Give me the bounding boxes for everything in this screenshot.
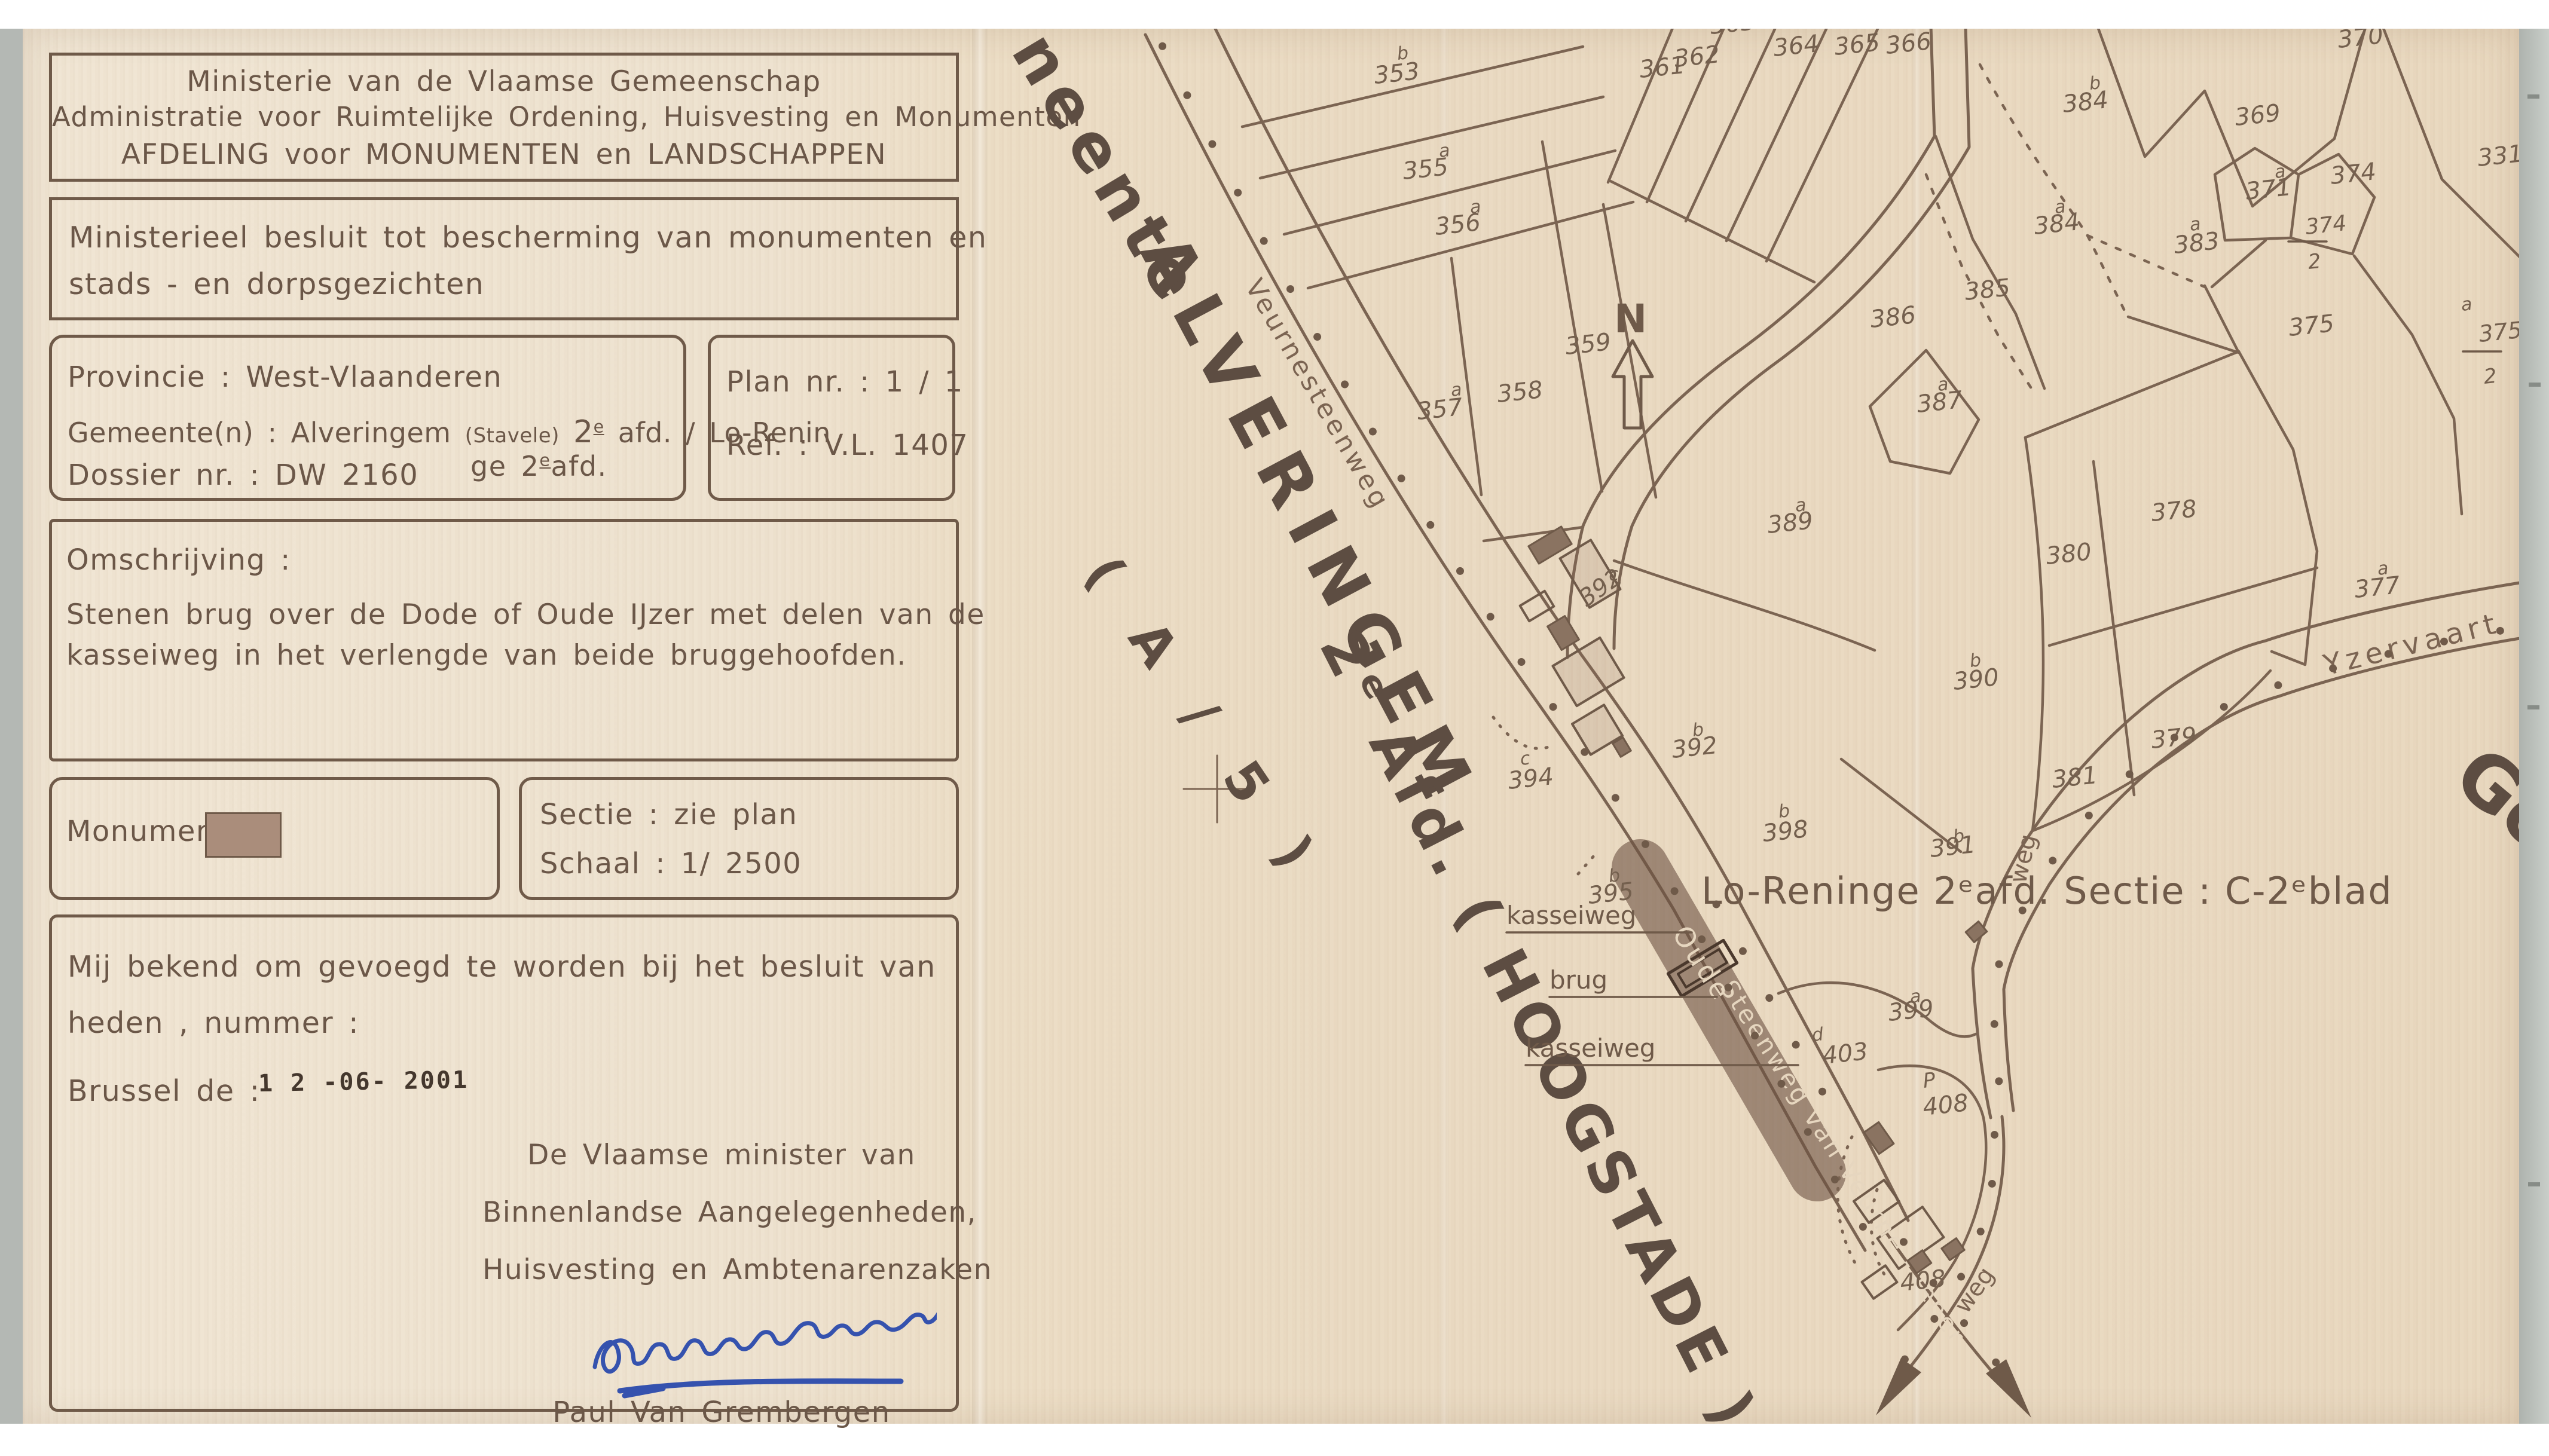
- boundary-dot: [1398, 475, 1405, 482]
- parcel-label: 331: [2476, 140, 2524, 172]
- parcel-label: a: [1794, 494, 1807, 516]
- boundary-dot: [1988, 1180, 1996, 1188]
- boundary-dot: [2049, 857, 2056, 864]
- scanner-edge-marks: [2527, 94, 2541, 1186]
- parcel-label: a: [1909, 986, 1922, 1008]
- boundary-dot: [1751, 1032, 1759, 1039]
- parcel-label: b: [1396, 42, 1410, 65]
- boundary-dot: [1234, 189, 1242, 197]
- side-road-right: [1614, 26, 1969, 649]
- parcel-label: b: [2088, 72, 2102, 94]
- parcel-label: 381: [2050, 761, 2099, 794]
- boundary-dot: [2440, 638, 2448, 646]
- boundary-dot: [1341, 381, 1349, 389]
- boundary-dot: [1804, 1128, 1812, 1136]
- parcel-label: b: [1952, 825, 1966, 848]
- scanned-decree-sheet: Ministerie van de Vlaamse Gemeenschap Ad…: [0, 0, 2549, 1456]
- parcel-label: 363: [1708, 8, 1757, 40]
- boundary-dot: [1671, 887, 1679, 895]
- arrow-southwest: [1876, 1358, 1921, 1415]
- parcel-label: 369: [2233, 99, 2282, 131]
- parcel-label: b: [1969, 650, 1982, 672]
- leader-kasseiweg-2: kasseiweg: [1526, 1033, 1655, 1063]
- parcel-label: 384: [2061, 86, 2110, 118]
- boundary-dot: [1313, 333, 1321, 341]
- boundary-dot: [2019, 907, 2027, 914]
- parcel-label: 370: [2336, 22, 2385, 54]
- boundary-dot: [1456, 567, 1464, 575]
- boundary-dot: [1765, 994, 1773, 1002]
- parcel-label: a: [2053, 196, 2067, 218]
- boundary-dot: [1930, 1315, 1938, 1323]
- boundary-dot: [1487, 613, 1494, 620]
- boundary-dot: [1991, 1020, 1998, 1028]
- boundary-dot: [1549, 703, 1557, 711]
- parcel-label: a: [2273, 161, 2287, 183]
- boundary-dot: [1518, 658, 1526, 666]
- parcel-label: c: [1607, 564, 1620, 586]
- parcel-label: a: [1936, 374, 1949, 396]
- parcel-label: b: [1607, 865, 1621, 887]
- boundary-dot: [1426, 521, 1434, 529]
- parcel-label: 365: [1833, 29, 1881, 61]
- parcel-label: 389: [1766, 507, 1814, 539]
- boundary-dot: [1698, 935, 1706, 943]
- boundary-dot: [1960, 1319, 1968, 1327]
- parcel-label: 358: [1496, 376, 1544, 408]
- parcel-label: a: [2189, 213, 2202, 235]
- parcel-label: 2: [2483, 364, 2498, 389]
- cadastral-map: N neente ALVERINGEM 2ᵉ Afd. ( HOOGSTADE …: [0, 0, 2549, 1456]
- road-name-steenweg: Steenweg van Veurne - Ieper: [1714, 975, 1973, 1350]
- boundary-dot: [1581, 748, 1588, 756]
- parcel-label: 374: [2329, 158, 2377, 190]
- parcel-label: 377: [2353, 571, 2401, 604]
- parcel-label: P: [1922, 1068, 1937, 1093]
- parcel-label: a: [1450, 379, 1463, 401]
- boundary-dot: [1992, 1359, 2000, 1366]
- boundary-dot: [1792, 1041, 1800, 1048]
- canal-weg-upper: [1973, 583, 2520, 1118]
- leader-brug: brug: [1549, 965, 1607, 995]
- parcel-label: 408: [1899, 1265, 1947, 1297]
- neighbor-fragment: Ge: [2438, 730, 2549, 869]
- parcel-label: a: [2460, 293, 2473, 316]
- north-label: N: [1614, 296, 1647, 342]
- parcel-label: a: [2376, 558, 2389, 580]
- boundary-dot: [1286, 285, 1294, 293]
- boundary-dot: [1977, 1228, 1985, 1235]
- parcel-label: a: [1469, 196, 1482, 218]
- boundary-dot: [1369, 428, 1377, 436]
- protected-road-highlight: [1640, 868, 1817, 1173]
- boundary-dot: [1818, 1088, 1826, 1096]
- parcel-label: 353: [1373, 57, 1421, 90]
- boundary-dot: [2496, 627, 2504, 635]
- parcel-label: 374: [2305, 211, 2348, 240]
- boundary-dot: [1208, 140, 1216, 148]
- parcel-label: 408: [1921, 1089, 1970, 1121]
- boundary-dot: [1777, 1080, 1785, 1088]
- parcel-label: c: [1519, 748, 1532, 770]
- parcel-label: 375: [2477, 317, 2523, 347]
- parcel-label: 385: [1963, 274, 2012, 306]
- parcel-label: 362: [1673, 41, 1721, 73]
- boundary-dot: [2085, 812, 2093, 819]
- boundary-dot: [1991, 1131, 1998, 1139]
- boundary-dot: [1859, 1223, 1867, 1231]
- parcel-label: b: [1777, 800, 1791, 822]
- parcel-label: 386: [1869, 301, 1917, 334]
- parcel-label: 359: [1564, 328, 1612, 360]
- parcel-label: 375: [2287, 310, 2336, 342]
- boundary-dot: [1930, 1279, 1937, 1287]
- parcel-label: 380: [2044, 538, 2093, 570]
- boundary-dot: [2274, 681, 2282, 689]
- boundary-dot: [1183, 91, 1191, 99]
- boundary-dot: [1901, 1356, 1909, 1363]
- boundary-dot: [1159, 42, 1166, 50]
- boundary-dot: [1725, 984, 1732, 992]
- boundary-dot: [1260, 237, 1268, 245]
- parcel-label: 378: [2150, 495, 2198, 527]
- parcel-label: 366: [1884, 27, 1933, 60]
- municipality-code: ( A / 5 ): [1073, 545, 1336, 894]
- boundary-dot: [1642, 840, 1649, 848]
- section-title: Lo-Reninge 2ᵉafd. Sectie : C-2ᵉblad: [1701, 869, 2393, 913]
- boundary-dot: [1713, 900, 1720, 908]
- arrow-southeast: [1986, 1359, 2031, 1418]
- boundary-dot: [2385, 650, 2392, 658]
- parcel-label: d: [1811, 1024, 1825, 1046]
- parcel-label: 403: [1821, 1038, 1869, 1070]
- boundary-dot: [2171, 733, 2178, 741]
- boundary-dot: [1612, 794, 1619, 802]
- boundary-dot: [2126, 770, 2134, 778]
- boundary-dot: [1900, 1238, 1908, 1246]
- parcel-label: a: [1438, 140, 1451, 162]
- boundary-dot: [1995, 1077, 2003, 1085]
- parcel-label: b: [1691, 719, 1705, 741]
- parcel-label: 2: [2307, 249, 2322, 274]
- boundary-dot: [1739, 947, 1747, 955]
- parcel-label: 364: [1772, 30, 1820, 62]
- boundary-dot: [2220, 703, 2228, 711]
- boundary-dot: [1957, 1273, 1965, 1281]
- boundary-dot: [1831, 1176, 1839, 1183]
- boundary-dot: [2329, 665, 2337, 672]
- boundary-dot: [1995, 961, 2003, 968]
